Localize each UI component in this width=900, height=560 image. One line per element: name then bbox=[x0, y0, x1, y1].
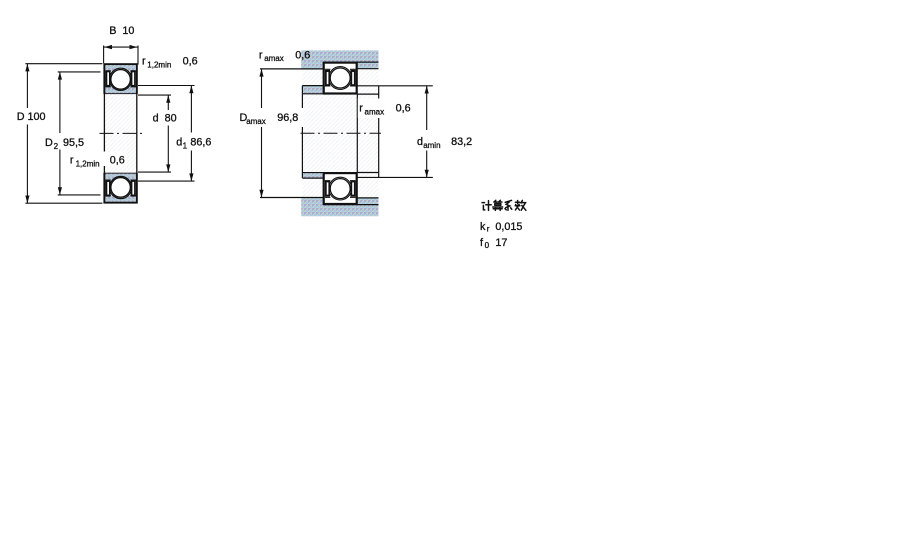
svg-text:r: r bbox=[359, 103, 363, 115]
svg-text:86,6: 86,6 bbox=[190, 136, 211, 148]
svg-text:d 80: d 80 bbox=[153, 112, 177, 124]
svg-text:0,015: 0,015 bbox=[495, 221, 522, 233]
svg-text:amax: amax bbox=[246, 117, 266, 126]
svg-text:D 100: D 100 bbox=[17, 111, 46, 123]
svg-text:17: 17 bbox=[495, 237, 507, 249]
svg-text:amin: amin bbox=[423, 141, 440, 150]
svg-text:0,6: 0,6 bbox=[110, 154, 125, 166]
svg-text:r: r bbox=[142, 55, 146, 67]
svg-text:amax: amax bbox=[264, 54, 284, 63]
svg-text:r: r bbox=[70, 155, 74, 167]
svg-text:f: f bbox=[480, 237, 484, 249]
svg-text:1,2min: 1,2min bbox=[147, 60, 171, 69]
svg-text:0: 0 bbox=[485, 241, 490, 250]
svg-text:d: d bbox=[176, 136, 182, 148]
svg-text:96,8: 96,8 bbox=[277, 112, 298, 124]
svg-text:d: d bbox=[417, 136, 423, 148]
svg-text:1: 1 bbox=[183, 141, 188, 150]
svg-text:0,6: 0,6 bbox=[295, 49, 310, 61]
svg-text:1,2min: 1,2min bbox=[76, 160, 100, 169]
svg-text:95,5: 95,5 bbox=[63, 137, 84, 149]
svg-text:0,6: 0,6 bbox=[396, 103, 411, 115]
svg-text:2: 2 bbox=[54, 142, 59, 151]
svg-text:0,6: 0,6 bbox=[183, 55, 198, 67]
svg-text:83,2: 83,2 bbox=[451, 136, 472, 148]
svg-text:r: r bbox=[487, 225, 490, 234]
svg-text:amax: amax bbox=[365, 108, 385, 117]
svg-text:k: k bbox=[480, 221, 486, 233]
svg-text:r: r bbox=[259, 49, 263, 61]
svg-text:D: D bbox=[45, 137, 53, 149]
svg-text:B 10: B 10 bbox=[109, 25, 134, 37]
